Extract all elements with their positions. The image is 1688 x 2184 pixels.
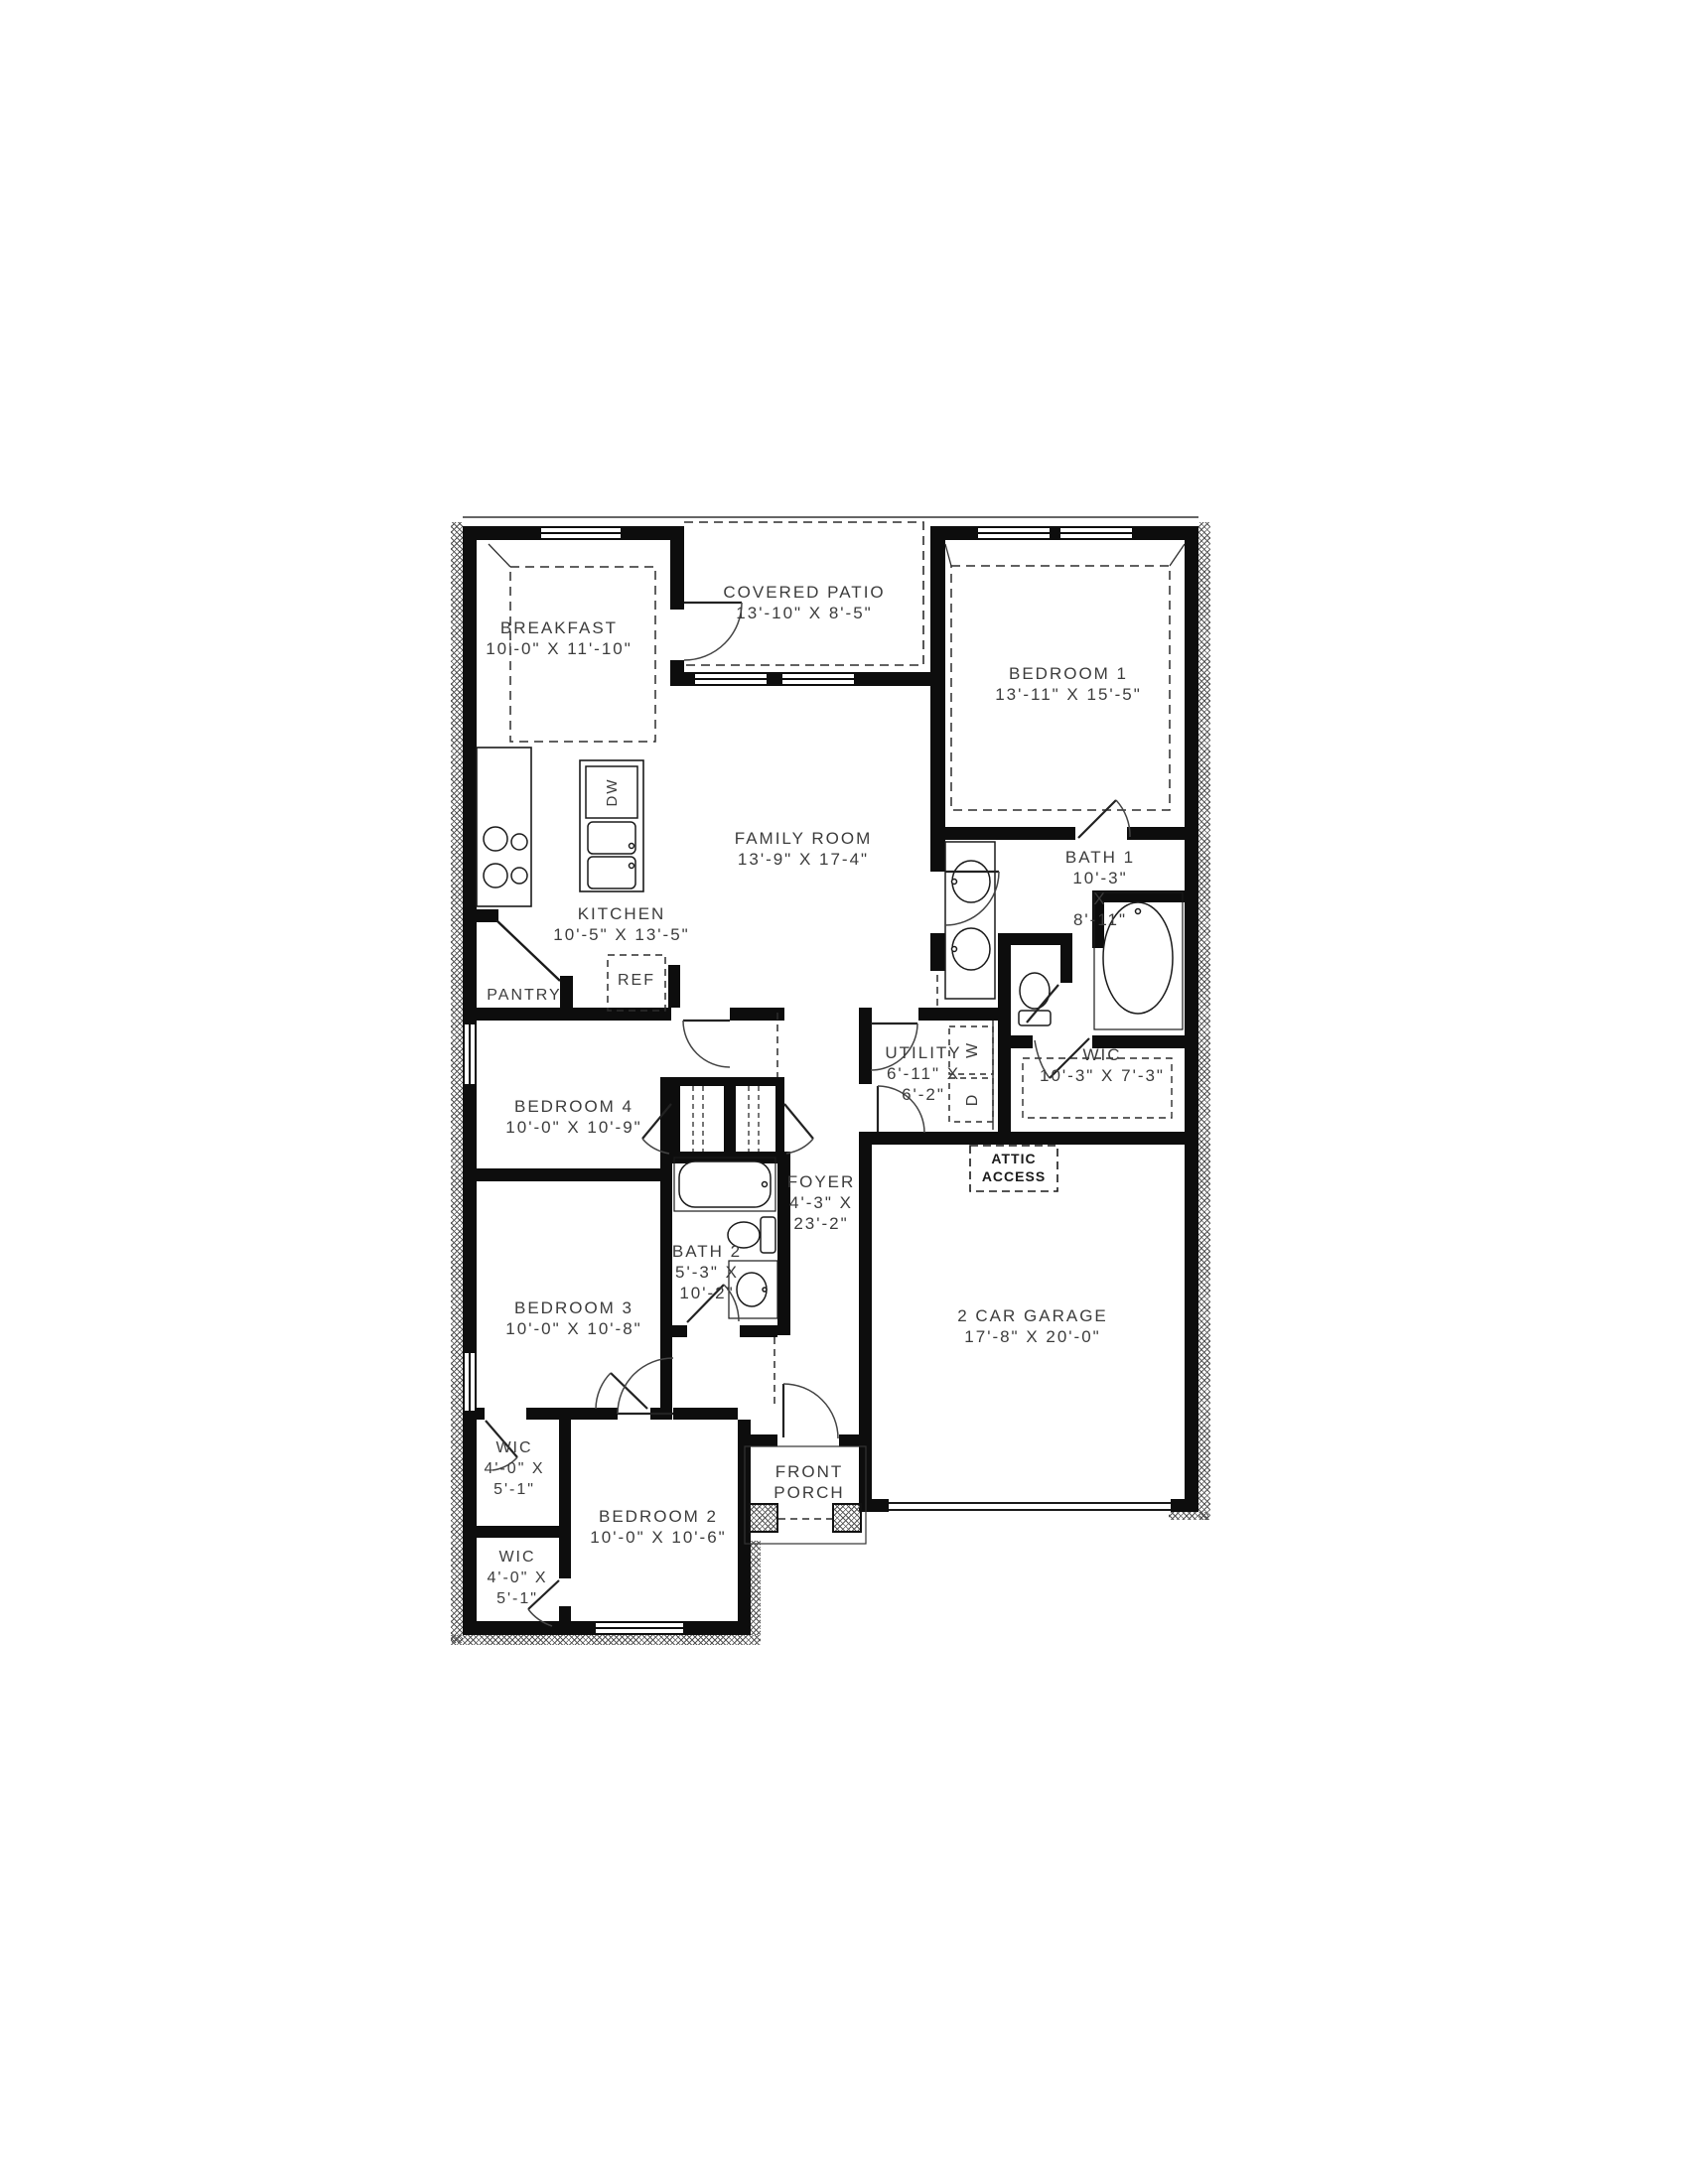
appliance-name: REF <box>618 970 655 991</box>
attic-line: ATTIC <box>982 1150 1046 1167</box>
room-dims: 13'-10" X 8'-5" <box>723 603 885 623</box>
room-dims: 10'-0" X 10'-9" <box>505 1117 641 1138</box>
tray-corner-tick <box>489 544 510 567</box>
plan-linework: W D DW <box>0 0 1688 2184</box>
label-attic-access: ATTIC ACCESS <box>982 1150 1046 1185</box>
room-name: BEDROOM 3 <box>505 1297 641 1318</box>
room-label-wic-bedroom2: WIC 4'-0" X 5'-1" <box>488 1547 548 1609</box>
svg-text:DW: DW <box>604 778 621 807</box>
room-dims: 5'-3" X <box>672 1262 742 1283</box>
room-name: WIC <box>485 1437 545 1458</box>
room-name: BEDROOM 4 <box>505 1096 641 1117</box>
room-name: UTILITY <box>885 1042 961 1063</box>
room-label-bath1: BATH 1 10'-3" X 8'-11" <box>1065 847 1135 930</box>
room-label-pantry: PANTRY <box>487 985 561 1006</box>
svg-text:W: W <box>964 1042 981 1058</box>
room-label-wic-master: WIC 10'-3" X 7'-3" <box>1040 1044 1165 1086</box>
room-label-front-porch: FRONT PORCH <box>774 1461 844 1503</box>
room-name: WIC <box>488 1547 548 1568</box>
floor-plan: W D DW <box>0 0 1688 2184</box>
room-name: BREAKFAST <box>486 617 633 638</box>
room-name: KITCHEN <box>553 903 689 924</box>
room-dims: 6'-11" X <box>885 1063 961 1084</box>
room-dims: 4'-3" X <box>787 1192 856 1213</box>
room-label-garage: 2 CAR GARAGE 17'-8" X 20'-0" <box>957 1305 1108 1347</box>
room-dims: 23'-2" <box>787 1213 856 1234</box>
room-name: BATH 1 <box>1065 847 1135 868</box>
room-name: WIC <box>1040 1044 1165 1065</box>
room-label-bedroom2: BEDROOM 2 10'-0" X 10'-6" <box>590 1506 726 1548</box>
room-label-foyer: FOYER 4'-3" X 23'-2" <box>787 1171 856 1234</box>
room-dims: 4'-0" X <box>485 1458 545 1479</box>
room-label-bedroom4: BEDROOM 4 10'-0" X 10'-9" <box>505 1096 641 1138</box>
room-dims: 13'-11" X 15'-5" <box>995 684 1142 705</box>
room-dims: 10'-3" <box>1065 868 1135 888</box>
room-dims: 10'-5" X 13'-5" <box>553 924 689 945</box>
room-dims: X <box>1065 888 1135 909</box>
room-dims: 4'-0" X <box>488 1568 548 1588</box>
room-name: FAMILY ROOM <box>735 828 873 849</box>
room-dims: 10'-0" X 11'-10" <box>486 638 633 659</box>
room-name: COVERED PATIO <box>723 582 885 603</box>
tray-corner-tick <box>945 544 1185 566</box>
room-label-utility: UTILITY 6'-11" X 6'-2" <box>885 1042 961 1105</box>
room-name: FRONT <box>774 1461 844 1482</box>
room-name: BEDROOM 2 <box>590 1506 726 1527</box>
room-name: PANTRY <box>487 985 561 1006</box>
room-label-bath2: BATH 2 5'-3" X 10'-2" <box>672 1241 742 1303</box>
room-name: FOYER <box>787 1171 856 1192</box>
room-label-covered-patio: COVERED PATIO 13'-10" X 8'-5" <box>723 582 885 623</box>
room-dims: 6'-2" <box>885 1084 961 1105</box>
room-label-kitchen: KITCHEN 10'-5" X 13'-5" <box>553 903 689 945</box>
garage-door <box>889 1503 1171 1510</box>
room-dims: 10'-3" X 7'-3" <box>1040 1065 1165 1086</box>
attic-line: ACCESS <box>982 1167 1046 1185</box>
room-dims: 5'-1" <box>488 1588 548 1609</box>
room-label-bedroom3: BEDROOM 3 10'-0" X 10'-8" <box>505 1297 641 1339</box>
room-name: PORCH <box>774 1482 844 1503</box>
room-dims: 5'-1" <box>485 1479 545 1500</box>
svg-text:D: D <box>964 1094 981 1107</box>
room-dims: 10'-0" X 10'-6" <box>590 1527 726 1548</box>
room-dims: 10'-2" <box>672 1283 742 1303</box>
room-label-bedroom1: BEDROOM 1 13'-11" X 15'-5" <box>995 663 1142 705</box>
room-label-breakfast: BREAKFAST 10'-0" X 11'-10" <box>486 617 633 659</box>
pantry-door <box>496 920 560 981</box>
room-dims: 8'-11" <box>1065 909 1135 930</box>
room-dims: 17'-8" X 20'-0" <box>957 1326 1108 1347</box>
room-label-wic-bedroom3: WIC 4'-0" X 5'-1" <box>485 1437 545 1500</box>
label-refrigerator: REF <box>618 970 655 991</box>
room-dims: 10'-0" X 10'-8" <box>505 1318 641 1339</box>
room-label-family-room: FAMILY ROOM 13'-9" X 17-4" <box>735 828 873 870</box>
bath2-tub-icon <box>674 1158 775 1211</box>
bath1-vanity <box>945 842 995 999</box>
room-name: BATH 2 <box>672 1241 742 1262</box>
room-name: 2 CAR GARAGE <box>957 1305 1108 1326</box>
room-dims: 13'-9" X 17-4" <box>735 849 873 870</box>
room-name: BEDROOM 1 <box>995 663 1142 684</box>
